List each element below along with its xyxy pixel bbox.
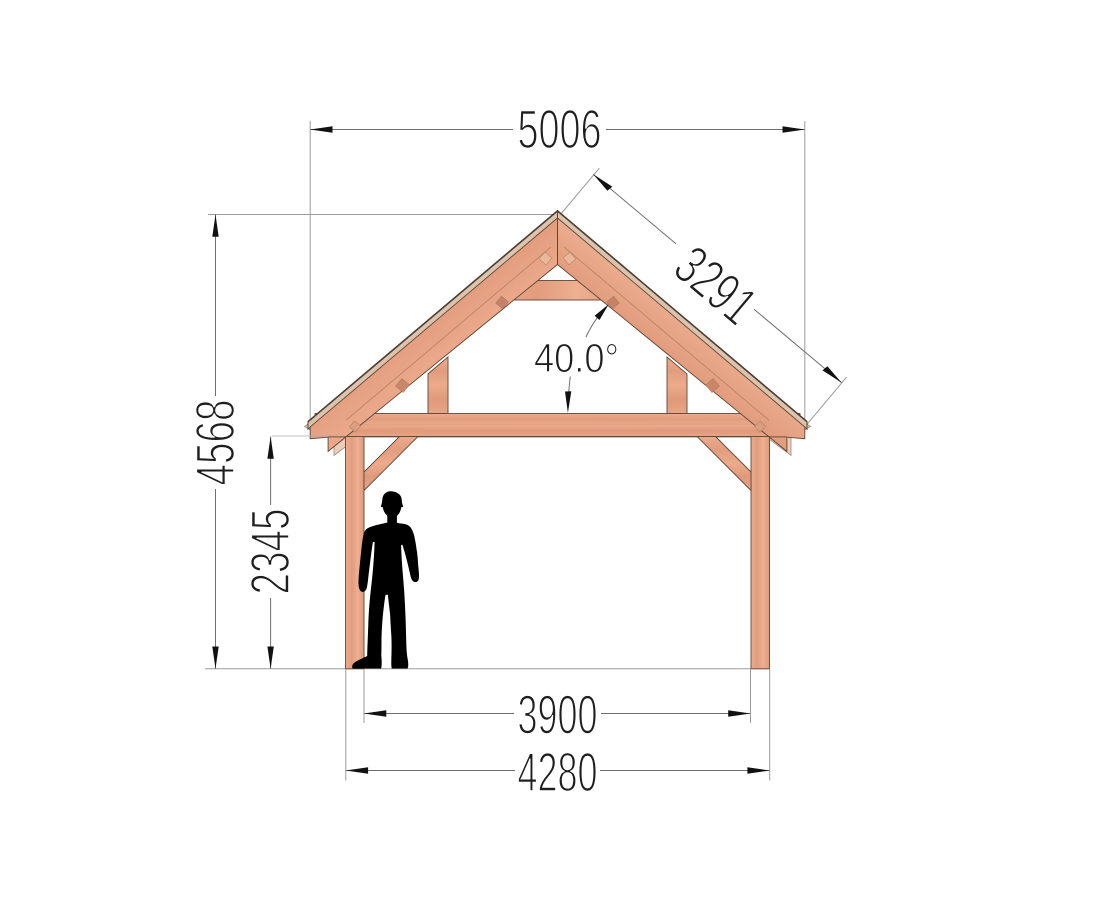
svg-text:40.0°: 40.0°: [534, 335, 619, 381]
svg-text:2345: 2345: [239, 509, 301, 595]
svg-text:3900: 3900: [518, 684, 598, 746]
svg-text:4280: 4280: [518, 741, 598, 803]
svg-text:4568: 4568: [184, 400, 246, 486]
svg-text:5006: 5006: [518, 98, 602, 160]
